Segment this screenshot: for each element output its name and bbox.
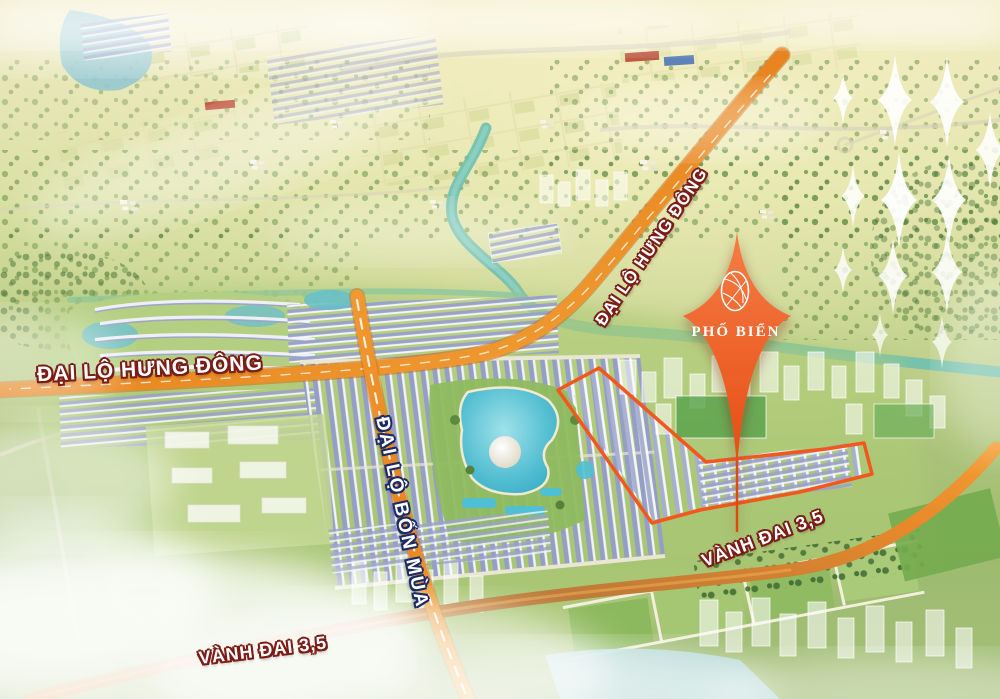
masterplan-aerial-map: PHỐ BIỂN ĐẠI LỘ HƯNG ĐÔNG ĐẠI LỘ HƯNG Đ	[0, 0, 1000, 699]
terrain-render: PHỐ BIỂN	[0, 0, 1000, 699]
pho-bien-marker-label: PHỐ BIỂN	[692, 322, 781, 340]
